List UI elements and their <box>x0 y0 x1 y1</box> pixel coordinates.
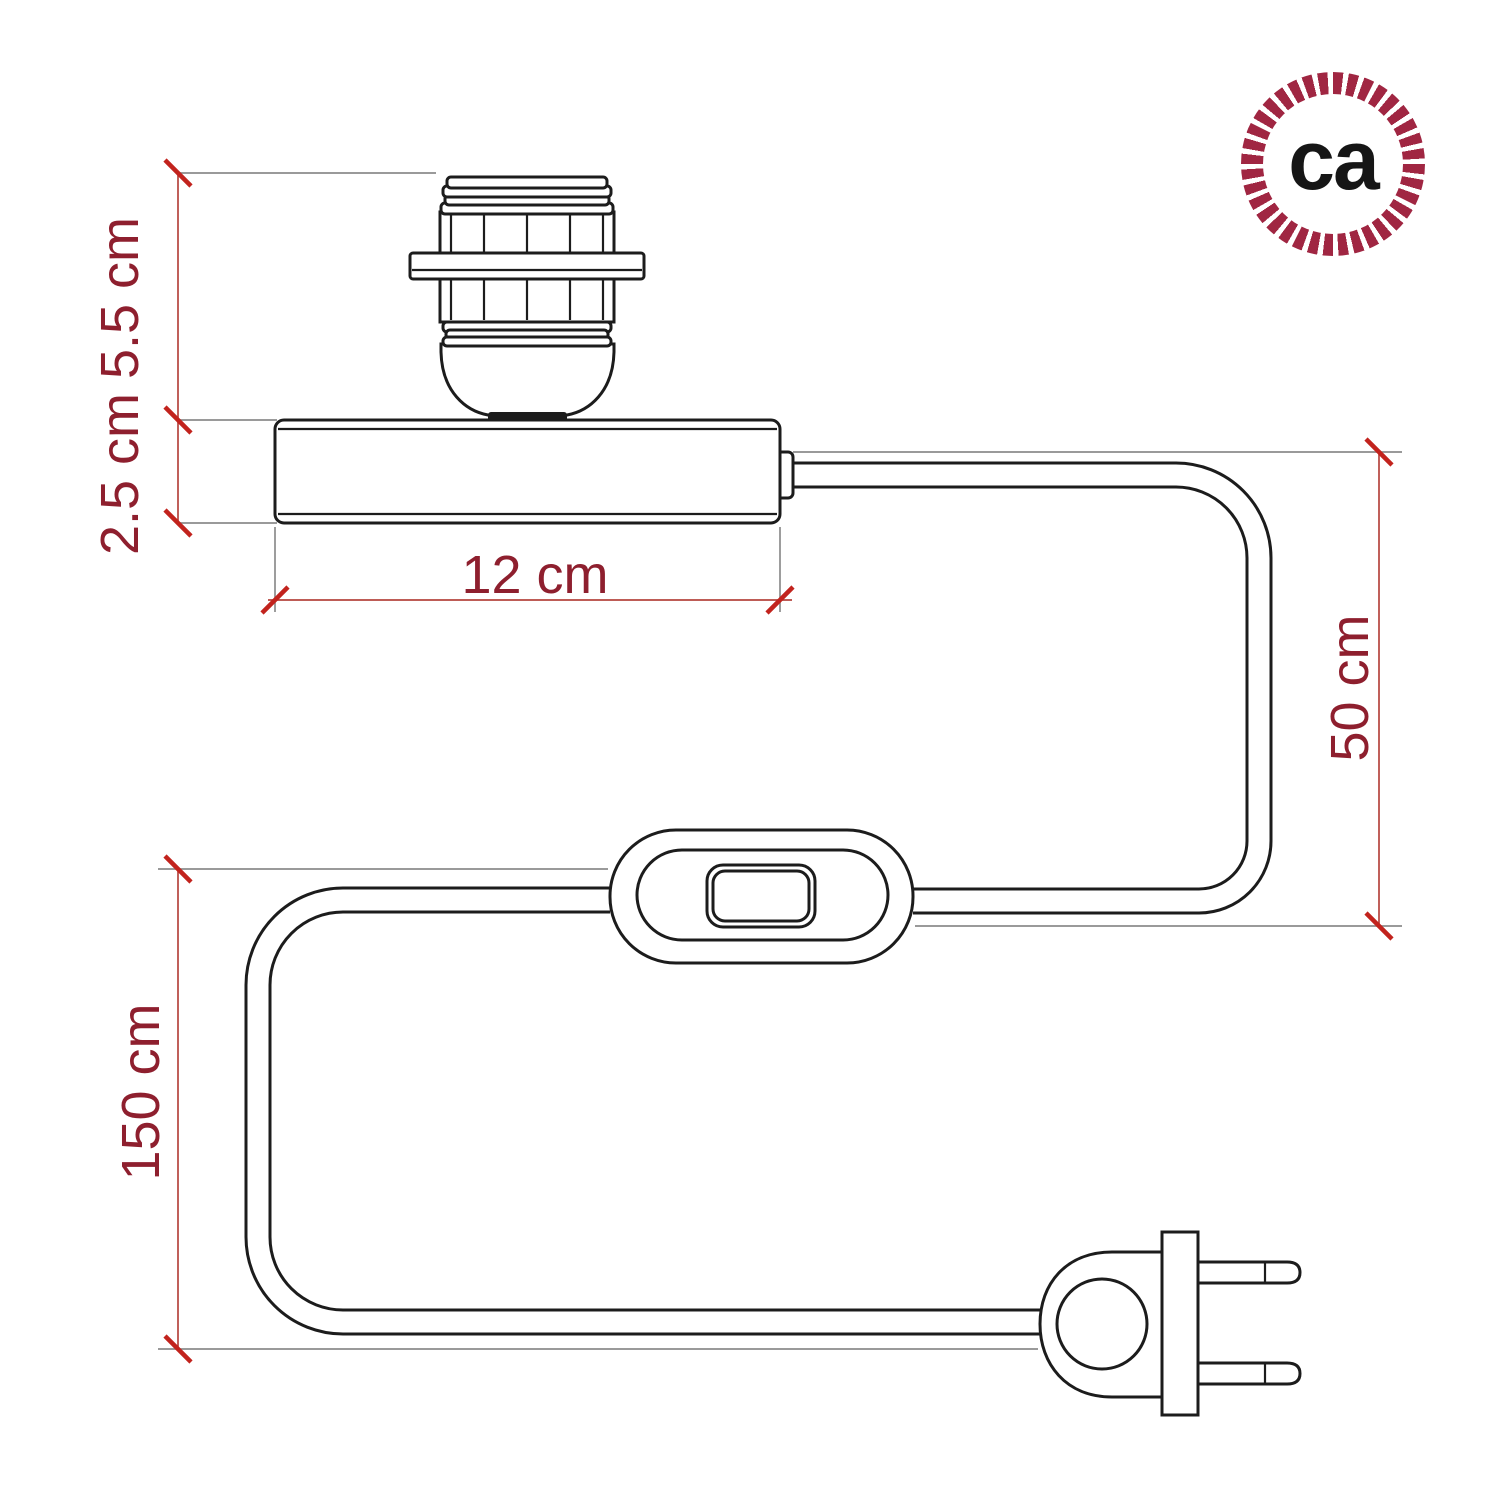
lamp-holder <box>410 177 644 422</box>
shade-ring <box>410 253 644 279</box>
logo-monogram: ca <box>1241 72 1425 256</box>
creative-cables-logo: ca <box>1241 72 1425 256</box>
plug-face-plate <box>1162 1232 1198 1415</box>
inline-switch <box>610 830 913 963</box>
two-pin-plug <box>1040 1232 1300 1415</box>
label-base-height: 2.5 cm <box>93 393 147 555</box>
socket-cup <box>441 344 614 415</box>
label-socket-height: 5.5 cm <box>93 217 147 379</box>
plug-pins <box>1197 1262 1300 1384</box>
cable-switch-to-plug <box>258 900 1045 1322</box>
label-base-length: 12 cm <box>461 548 608 602</box>
socket-lower-threads <box>443 322 611 346</box>
lamp-dimension-diagram: 5.5 cm 2.5 cm 12 cm 50 cm 150 cm ca <box>0 0 1500 1500</box>
label-cable-50cm: 50 cm <box>1323 614 1377 761</box>
label-cable-150cm: 150 cm <box>114 1003 168 1180</box>
socket-upper-threads <box>441 177 613 214</box>
switch-button <box>707 865 815 927</box>
lamp-base <box>275 420 780 523</box>
dimension-lines <box>158 160 1402 1362</box>
dimension-ticks <box>165 160 1392 1362</box>
